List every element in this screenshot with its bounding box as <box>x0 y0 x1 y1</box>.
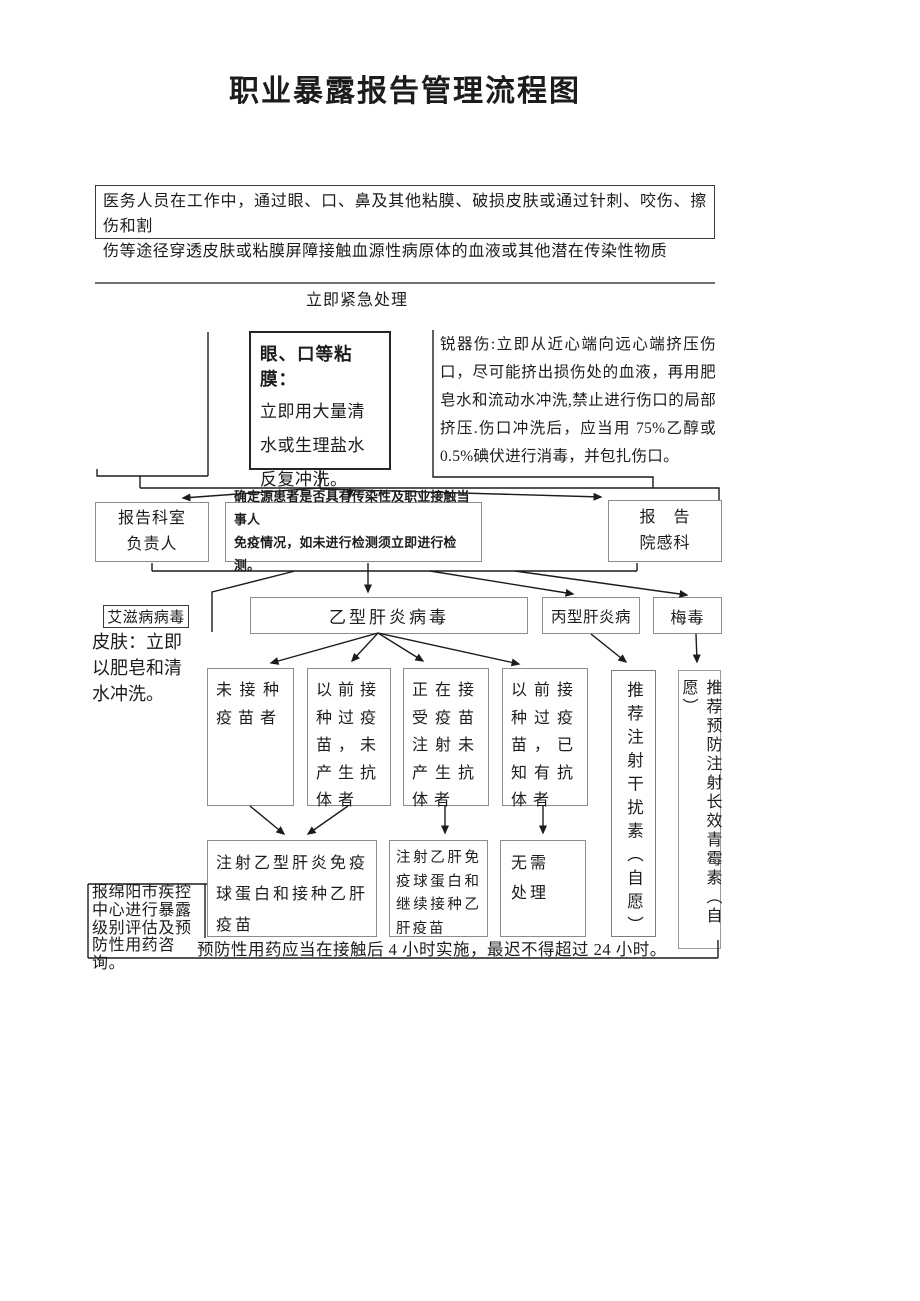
mucosa-box-title: 眼、口等粘膜： <box>260 341 380 391</box>
status-in-progress-no-antibody-box: 正在接受疫苗注射未产生抗体者 <box>403 668 489 806</box>
assess-source-patient-box: 确定源患者是否具有传染性及职业接触当事人 免疫情况，如未进行检测须立即进行检测。 <box>225 502 482 562</box>
status-vaccinated-no-antibody-box: 以前接种过疫苗，未产生抗体者 <box>307 668 391 806</box>
page-title: 职业暴露报告管理流程图 <box>95 66 715 110</box>
report-dept-head-label: 报告科室 负责人 <box>118 506 186 558</box>
treatment-hbig-vaccinate-box: 注射乙型肝炎免疫球蛋白和接种乙肝疫苗 <box>207 840 377 937</box>
intro-box: 医务人员在工作中，通过眼、口、鼻及其他粘膜、破损皮肤或通过针刺、咬伤、擦伤和割 … <box>95 185 715 239</box>
prophylaxis-timing-note: 预防性用药应当在接触后 4 小时实施，最迟不得超过 24 小时。 <box>197 936 717 960</box>
status-unvaccinated-box: 未接种疫苗者 <box>207 668 294 806</box>
sharp-injury-instructions: 锐器伤:立即从近心端向远心端挤压伤口，尽可能挤出损伤处的血液，再用肥皂水和流动水… <box>440 331 716 471</box>
mucosa-exposure-box: 眼、口等粘膜： 立即用大量清水或生理盐水反复冲洗。 <box>249 331 391 470</box>
document-page: 职业暴露报告管理流程图 医务人员在工作中，通过眼、口、鼻及其他粘膜、破损皮肤或通… <box>0 0 920 1301</box>
hcv-box: 丙型肝炎病 <box>542 597 640 634</box>
hbv-label: 乙型肝炎病毒 <box>329 603 449 628</box>
hiv-label-box: 艾滋病病毒 <box>103 605 189 628</box>
report-infection-control-box: 报 告 院感科 <box>608 500 722 562</box>
hcv-label: 丙型肝炎病 <box>551 605 631 627</box>
assess-source-patient-text: 确定源患者是否具有传染性及职业接触当事人 免疫情况，如未进行检测须立即进行检测。 <box>234 486 473 578</box>
emergency-treatment-label: 立即紧急处理 <box>272 286 442 310</box>
hiv-skin-note: 皮肤：立即以肥皂和清水冲洗。 <box>92 629 188 707</box>
mucosa-box-body: 立即用大量清水或生理盐水反复冲洗。 <box>260 395 380 497</box>
hbv-box: 乙型肝炎病毒 <box>250 597 528 634</box>
syphilis-label: 梅毒 <box>670 604 704 628</box>
hiv-label: 艾滋病病毒 <box>107 606 185 627</box>
cdc-report-note: 报绵阳市疾控中心进行暴露级别评估及预防性用药咨询。 <box>92 884 194 973</box>
penicillin-label: 推荐预防注射长效青霉素（自愿） <box>676 679 724 948</box>
interferon-column-box: 推荐注射干扰素（自愿） <box>611 670 656 937</box>
treatment-none-box: 无需 处理 <box>500 840 586 937</box>
report-dept-head-box: 报告科室 负责人 <box>95 502 209 562</box>
status-vaccinated-with-antibody-box: 以前接种过疫苗，已知有抗体者 <box>502 668 588 806</box>
penicillin-column-box: 推荐预防注射长效青霉素（自愿） <box>678 670 721 949</box>
syphilis-box: 梅毒 <box>653 597 722 634</box>
treatment-hbig-continue-box: 注射乙肝免疫球蛋白和继续接种乙肝疫苗 <box>389 840 488 937</box>
intro-text: 医务人员在工作中，通过眼、口、鼻及其他粘膜、破损皮肤或通过针刺、咬伤、擦伤和割 … <box>103 193 707 260</box>
interferon-label: 推荐注射干扰素（自愿） <box>622 681 646 936</box>
report-infection-control-label: 报 告 院感科 <box>639 505 690 557</box>
